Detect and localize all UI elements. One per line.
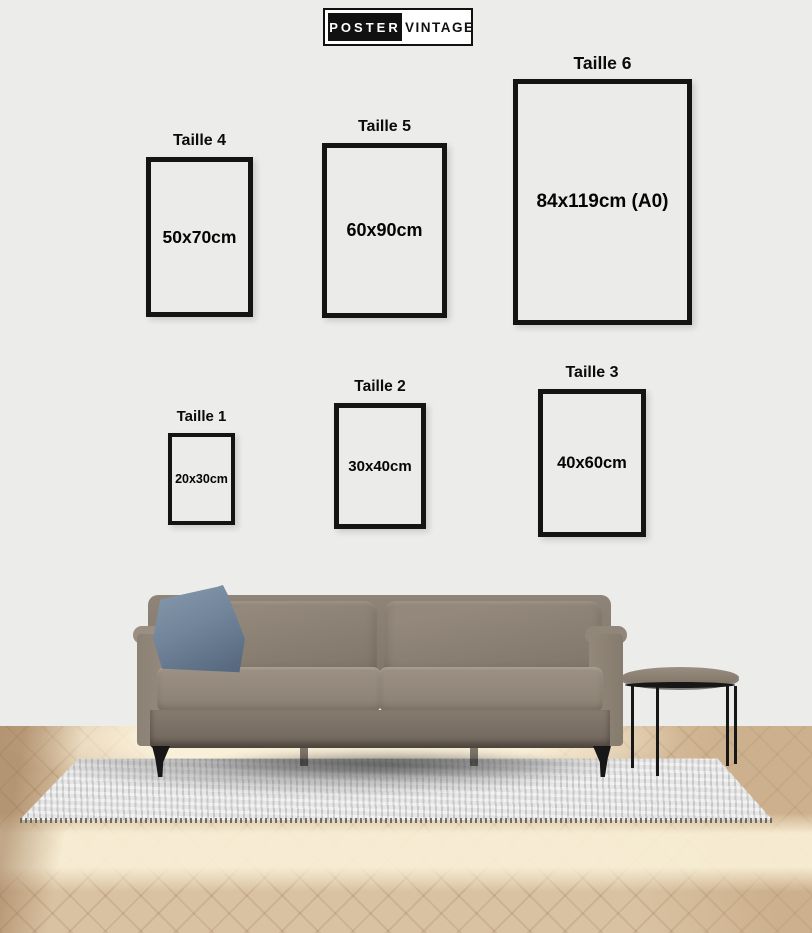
poster-frame-taille-2: 30x40cm [334, 403, 426, 529]
side-table-ring [625, 682, 735, 688]
size-label-taille-6: Taille 6 [483, 53, 722, 73]
side-table-leg [656, 687, 659, 776]
size-dimensions-taille-4: 50x70cm [163, 227, 237, 248]
poster-frame-taille-4: 50x70cm [146, 157, 253, 317]
sofa-seat-cushion-right [379, 667, 603, 712]
sofa-seat-cushion-left [157, 667, 381, 712]
size-label-taille-2: Taille 2 [304, 377, 456, 397]
brand-logo-vintage: VINTAGE [405, 13, 475, 41]
poster-size-guide-image: POSTER VINTAGE Taille 4 50x70cm Taille 5… [0, 0, 812, 933]
poster-frame-taille-6: 84x119cm (A0) [513, 79, 692, 325]
size-label-taille-1: Taille 1 [138, 407, 265, 427]
poster-frame-taille-3: 40x60cm [538, 389, 646, 537]
size-label-taille-3: Taille 3 [508, 363, 676, 383]
size-dimensions-taille-3: 40x60cm [557, 454, 627, 473]
side-table-leg [726, 685, 729, 766]
rug-fringe [20, 818, 772, 823]
size-dimensions-taille-6: 84x119cm (A0) [536, 191, 668, 213]
poster-frame-taille-5: 60x90cm [322, 143, 447, 318]
side-table-leg [631, 685, 634, 768]
size-dimensions-taille-1: 20x30cm [175, 472, 228, 486]
sofa-base [150, 710, 610, 748]
sofa-leg-middle [470, 748, 478, 766]
poster-frame-taille-1: 20x30cm [168, 433, 235, 525]
size-label-taille-5: Taille 5 [292, 117, 477, 137]
size-dimensions-taille-2: 30x40cm [348, 458, 411, 475]
size-label-taille-4: Taille 4 [116, 131, 283, 151]
size-dimensions-taille-5: 60x90cm [346, 220, 422, 241]
brand-logo: POSTER VINTAGE [323, 8, 473, 46]
side-table-leg [734, 686, 737, 764]
sofa-shadow [150, 748, 630, 790]
brand-logo-poster: POSTER [328, 13, 402, 41]
sofa-leg-middle [300, 748, 308, 766]
